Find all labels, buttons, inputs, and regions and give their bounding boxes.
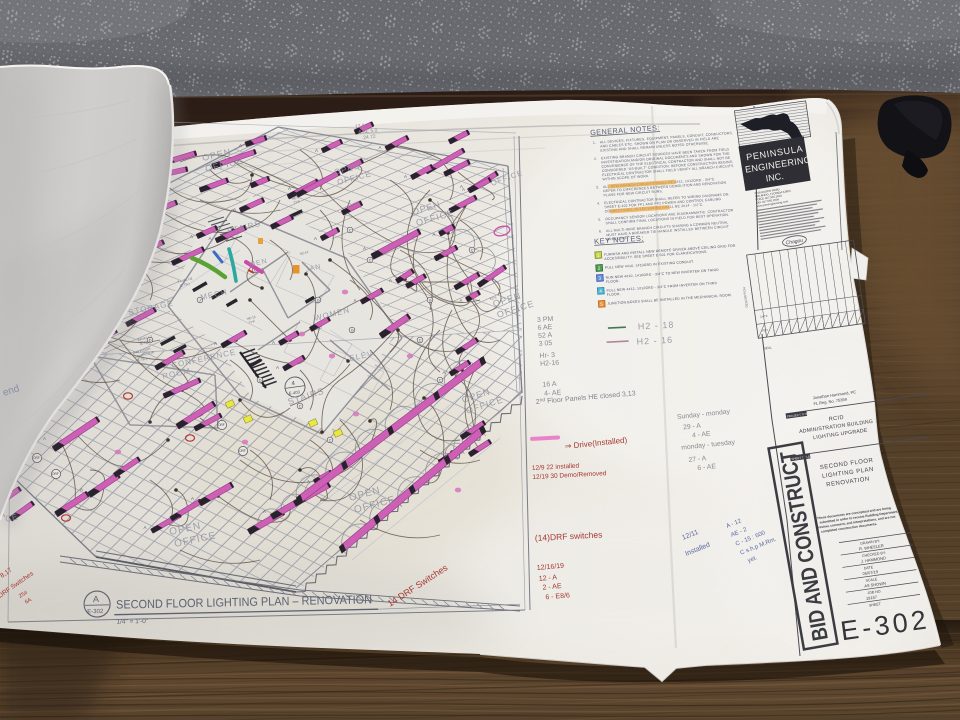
svg-text:A: A	[314, 236, 317, 241]
svg-text:REV: REV	[762, 328, 768, 333]
svg-text:6 AE: 6 AE	[537, 324, 553, 332]
svg-text:DRF: DRF	[52, 472, 59, 476]
svg-text:A: A	[239, 143, 242, 148]
svg-text:A: A	[443, 370, 446, 375]
svg-text:A: A	[462, 450, 465, 455]
svg-text:16 A: 16 A	[542, 381, 557, 389]
svg-text:3.: 3.	[596, 185, 599, 189]
svg-text:A: A	[307, 479, 310, 484]
svg-text:3 PM: 3 PM	[537, 316, 554, 324]
svg-text:A: A	[379, 145, 382, 150]
svg-text:A: A	[288, 186, 291, 191]
svg-text:A: A	[462, 187, 465, 192]
svg-text:A: A	[191, 496, 194, 501]
svg-text:3 05: 3 05	[538, 340, 552, 348]
svg-text:1/4" = 1'-0": 1/4" = 1'-0"	[116, 618, 149, 626]
svg-text:H2 - 18: H2 - 18	[638, 320, 675, 332]
svg-text:52 A: 52 A	[538, 332, 553, 340]
svg-text:G: G	[317, 298, 320, 302]
svg-text:Hr- 3: Hr- 3	[539, 352, 555, 360]
svg-text:A: A	[433, 232, 436, 237]
svg-text:C: C	[329, 438, 332, 442]
svg-text:A: A	[214, 341, 217, 346]
svg-text:C: C	[349, 228, 352, 232]
svg-text:A: A	[354, 298, 357, 303]
svg-text:A: A	[209, 236, 212, 241]
svg-text:1.: 1.	[593, 141, 596, 145]
svg-text:A: A	[263, 509, 266, 514]
svg-text:G: G	[351, 328, 354, 332]
svg-text:2.: 2.	[594, 157, 597, 161]
svg-text:C: C	[471, 248, 474, 252]
svg-text:E-302: E-302	[87, 609, 104, 615]
svg-text:4.: 4.	[597, 201, 600, 205]
svg-text:A: A	[470, 278, 473, 283]
svg-text:G: G	[429, 298, 432, 302]
svg-text:A: A	[460, 298, 463, 303]
svg-text:A: A	[80, 487, 83, 492]
svg-text:DRF: DRF	[239, 449, 246, 453]
svg-text:D: D	[259, 378, 262, 382]
svg-text:A: A	[93, 594, 99, 604]
svg-text:H2-16: H2-16	[540, 360, 560, 368]
svg-text:DRF: DRF	[218, 423, 225, 427]
svg-text:A: A	[276, 365, 279, 370]
svg-text:6.: 6.	[599, 229, 602, 233]
svg-text:A: A	[190, 234, 193, 239]
svg-text:C: C	[419, 338, 422, 342]
svg-text:A: A	[233, 207, 236, 212]
svg-text:A: A	[272, 340, 275, 345]
svg-text:A: A	[315, 148, 318, 153]
svg-text:A: A	[144, 525, 147, 530]
svg-text:A: A	[363, 246, 366, 251]
svg-text:A: A	[389, 278, 392, 283]
svg-text:C: C	[369, 258, 372, 262]
svg-text:A: A	[404, 174, 407, 179]
svg-text:C: C	[439, 378, 442, 382]
svg-text:H2 - 16: H2 - 16	[636, 335, 673, 347]
svg-text:5.: 5.	[598, 217, 601, 221]
svg-text:A: A	[168, 417, 171, 422]
svg-text:C: C	[299, 404, 302, 408]
